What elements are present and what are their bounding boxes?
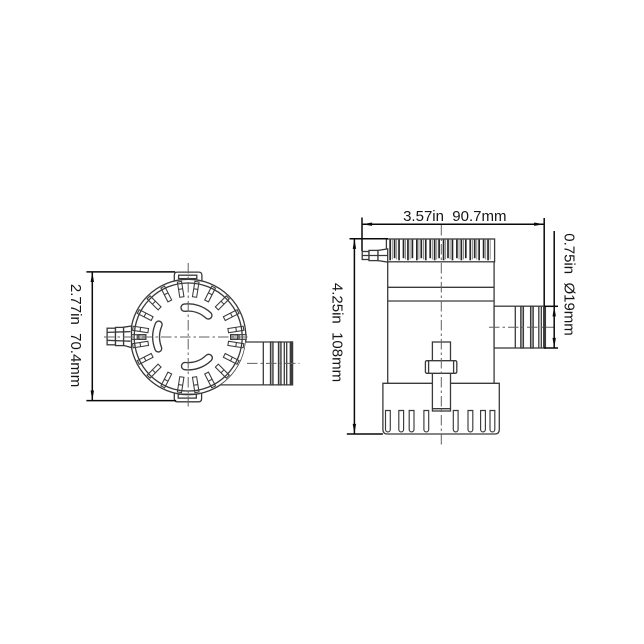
svg-text:2.77in 70.4mm: 2.77in 70.4mm — [67, 284, 84, 387]
svg-text:4.25in 108mm: 4.25in 108mm — [328, 283, 345, 382]
svg-text:0.75in Ø19mm: 0.75in Ø19mm — [560, 233, 577, 336]
svg-text:3.57in 90.7mm: 3.57in 90.7mm — [403, 208, 506, 225]
